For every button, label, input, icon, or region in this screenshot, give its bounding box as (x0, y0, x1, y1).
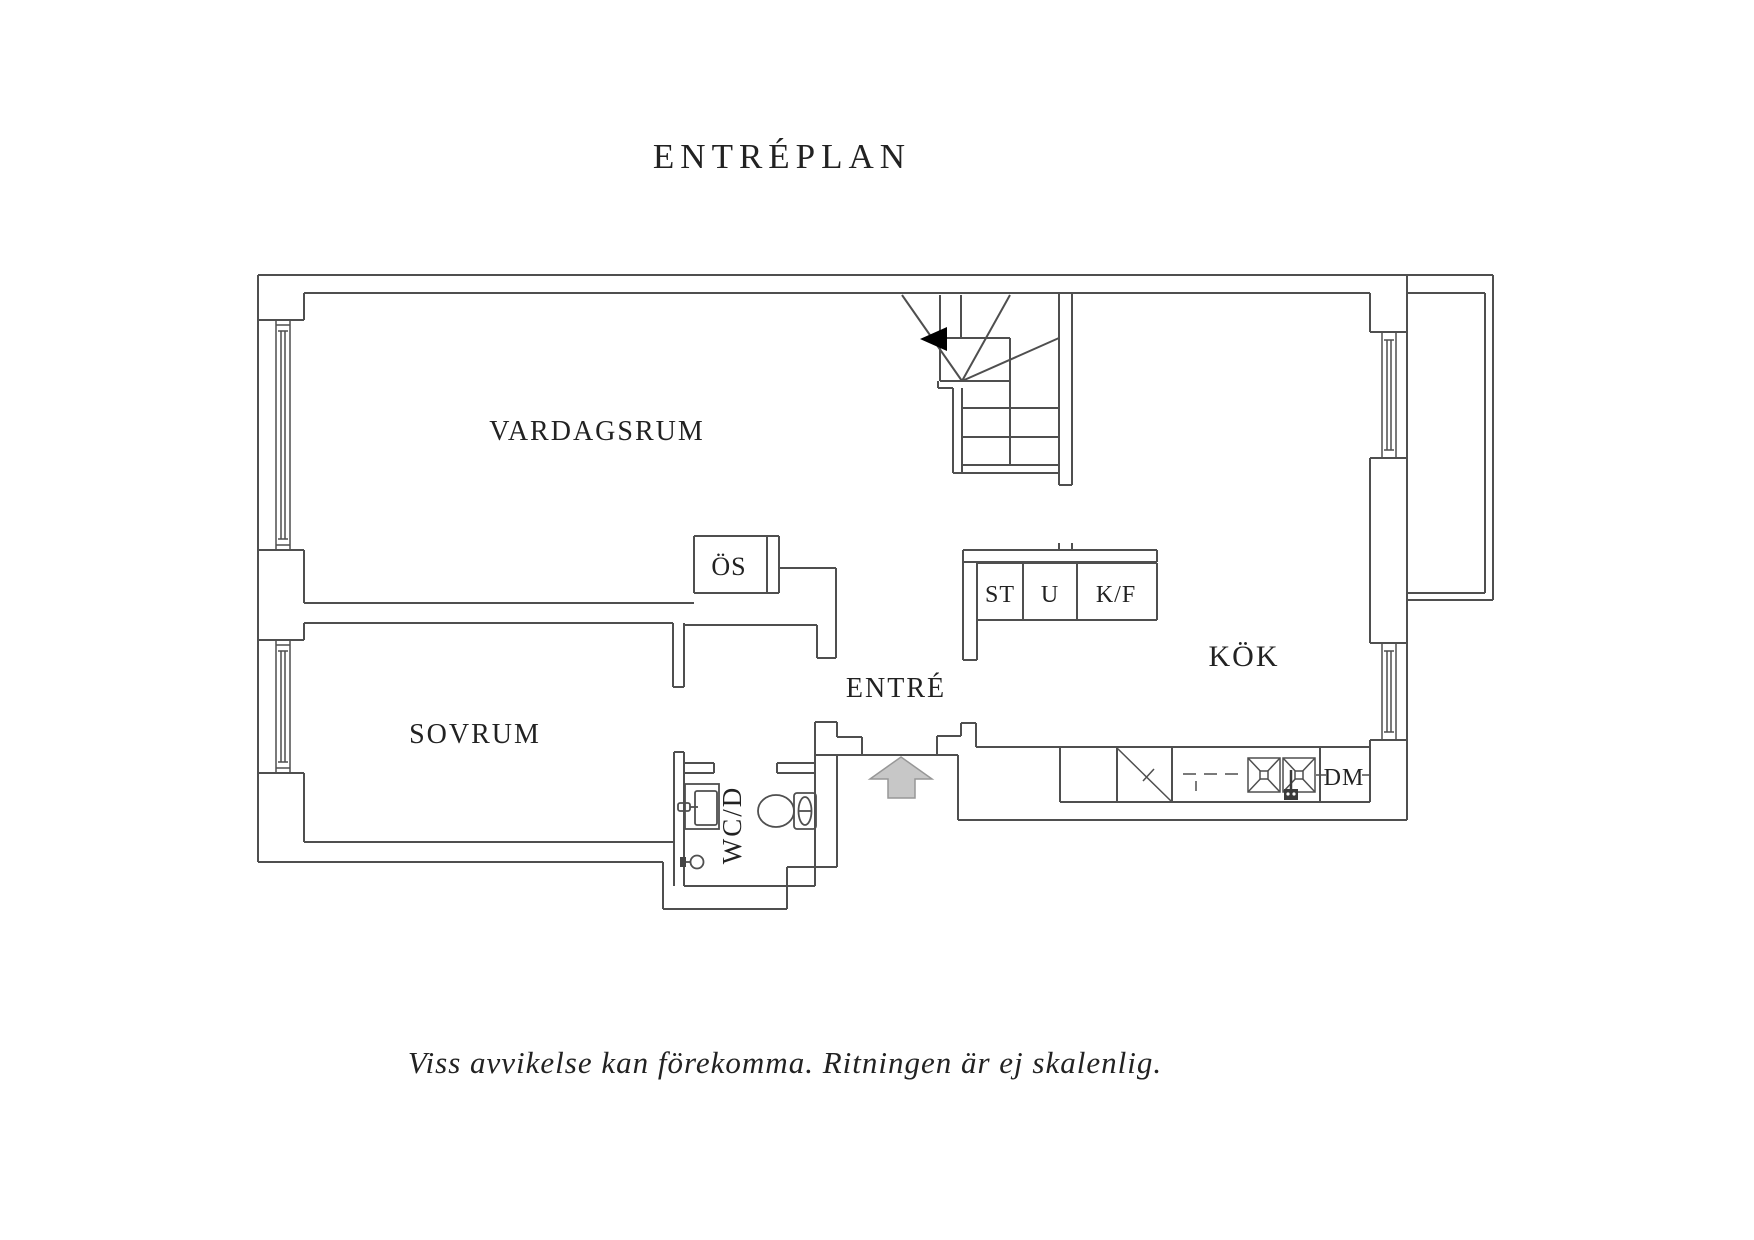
window-icon-sovrum (276, 640, 290, 773)
window-icon-balcony-door (1382, 332, 1396, 458)
floorplan-drawing: ENTRÉPLAN VARDAGSRUM SOVRUM KÖK ENTRÉ WC… (0, 0, 1754, 1240)
room-label-vardagsrum: VARDAGSRUM (489, 416, 705, 447)
room-label-sovrum: SOVRUM (409, 719, 541, 750)
appliance-label-dm: DM (1324, 765, 1365, 791)
room-label-wcd: WC/D (717, 786, 747, 865)
window-icons (276, 320, 1396, 773)
room-label-os: ÖS (711, 552, 746, 581)
entry-direction-arrow-icon (870, 757, 932, 798)
staircase (902, 295, 1059, 473)
floor-drain-icon (680, 856, 704, 869)
counter-cabinet-diagonal (1117, 748, 1171, 801)
floorplan-page: ENTRÉPLAN VARDAGSRUM SOVRUM KÖK ENTRÉ WC… (0, 0, 1754, 1240)
window-icon-kok (1382, 643, 1396, 740)
appliance-label-st: ST (985, 582, 1015, 608)
disclaimer-text: Viss avvikelse kan förekomma. Ritningen … (408, 1045, 1162, 1080)
bathroom-fixtures (678, 784, 816, 869)
stair-direction-arrow-icon (920, 327, 947, 351)
appliance-label-kf: K/F (1096, 582, 1136, 608)
room-label-entre: ENTRÉ (846, 673, 946, 704)
appliance-label-u: U (1041, 582, 1059, 608)
sink-basin-icon (1248, 758, 1315, 792)
toilet-icon (758, 793, 816, 829)
room-label-kok: KÖK (1209, 640, 1280, 673)
wall-lines (258, 275, 1493, 909)
sink-icon (678, 784, 719, 829)
page-title: ENTRÉPLAN (653, 137, 911, 176)
window-icon-vardagsrum (276, 320, 290, 550)
